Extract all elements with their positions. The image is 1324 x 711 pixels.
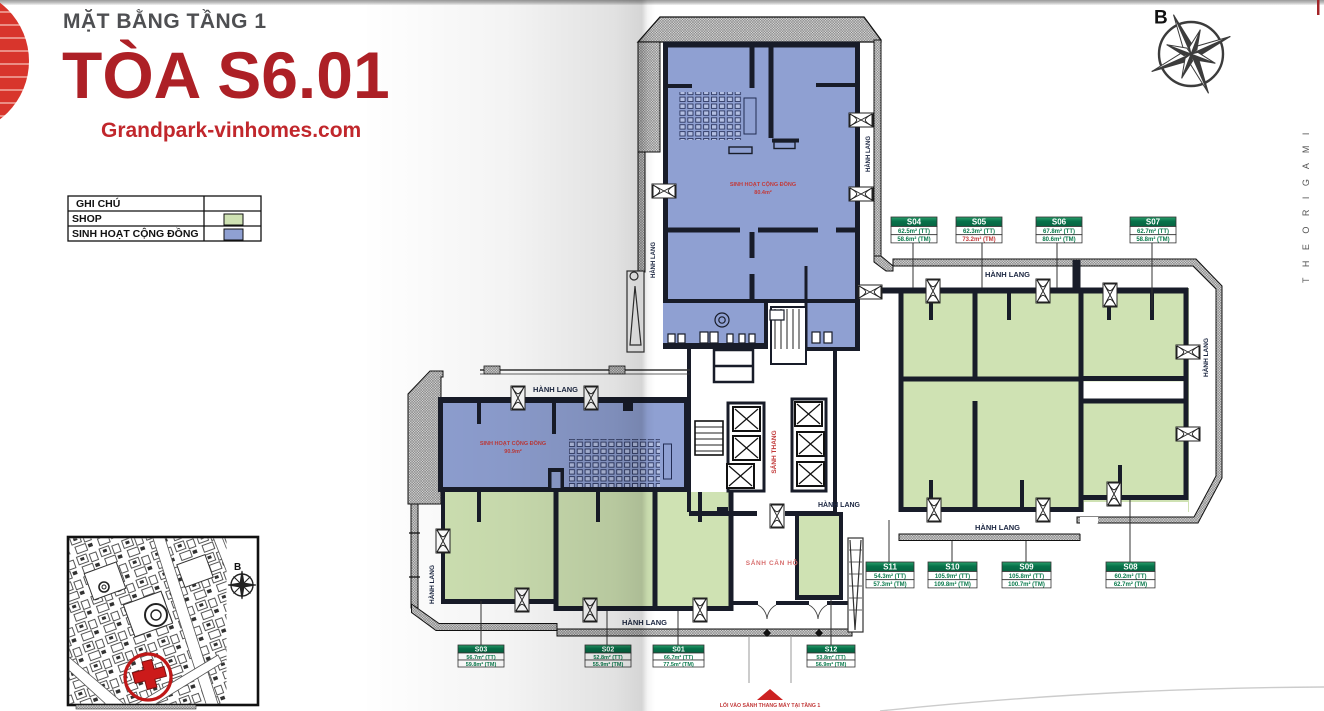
svg-text:77.5m² (TM): 77.5m² (TM) bbox=[663, 661, 694, 668]
svg-text:54.3m² (TT): 54.3m² (TT) bbox=[874, 573, 906, 580]
svg-text:LỐI VÀO SẢNH THANG MÁY TẠI TẦN: LỐI VÀO SẢNH THANG MÁY TẠI TẦNG 1 bbox=[720, 702, 821, 709]
svg-text:80.6m² (TM): 80.6m² (TM) bbox=[1042, 236, 1075, 243]
svg-text:80.4m²: 80.4m² bbox=[754, 189, 772, 196]
svg-text:S12: S12 bbox=[825, 647, 838, 654]
svg-text:S07: S07 bbox=[1146, 218, 1161, 227]
svg-text:S06: S06 bbox=[1052, 218, 1067, 227]
svg-text:62.7m² (TM): 62.7m² (TM) bbox=[1114, 581, 1147, 588]
svg-text:58.6m² (TM): 58.6m² (TM) bbox=[897, 236, 930, 243]
svg-text:S04: S04 bbox=[907, 218, 922, 227]
svg-text:MẶT BẰNG TẦNG 1: MẶT BẰNG TẦNG 1 bbox=[63, 9, 267, 33]
svg-text:Grandpark-vinhomes.com: Grandpark-vinhomes.com bbox=[101, 119, 361, 142]
svg-text:HÀNH LANG: HÀNH LANG bbox=[975, 523, 1020, 532]
svg-text:SINH HOẠT CỘNG ĐỒNG: SINH HOẠT CỘNG ĐỒNG bbox=[72, 227, 199, 240]
svg-text:SẢNH THANG: SẢNH THANG bbox=[769, 430, 778, 473]
svg-text:B: B bbox=[1154, 8, 1168, 29]
svg-text:62.5m² (TT): 62.5m² (TT) bbox=[898, 228, 930, 235]
svg-text:GHI CHÚ: GHI CHÚ bbox=[76, 197, 120, 210]
svg-text:HÀNH LANG: HÀNH LANG bbox=[818, 500, 861, 509]
svg-text:58.8m² (TM): 58.8m² (TM) bbox=[1136, 236, 1169, 243]
svg-text:SHOP: SHOP bbox=[72, 213, 102, 225]
svg-text:HÀNH LANG: HÀNH LANG bbox=[1201, 338, 1210, 377]
svg-text:56.9m² (TM): 56.9m² (TM) bbox=[816, 661, 847, 668]
svg-text:S10: S10 bbox=[945, 563, 960, 572]
svg-text:66.7m² (TT): 66.7m² (TT) bbox=[664, 654, 694, 661]
svg-text:S05: S05 bbox=[972, 218, 987, 227]
svg-text:60.2m² (TT): 60.2m² (TT) bbox=[1114, 573, 1146, 580]
svg-text:HÀNH LANG: HÀNH LANG bbox=[865, 136, 872, 172]
svg-text:100.7m² (TM): 100.7m² (TM) bbox=[1008, 581, 1045, 588]
svg-text:62.3m² (TT): 62.3m² (TT) bbox=[963, 228, 995, 235]
svg-text:B: B bbox=[234, 562, 241, 573]
svg-text:T H E O R I G A M I: T H E O R I G A M I bbox=[1301, 129, 1311, 283]
svg-text:57.3m² (TM): 57.3m² (TM) bbox=[873, 581, 906, 588]
svg-text:S08: S08 bbox=[1123, 563, 1138, 572]
svg-text:53.8m² (TT): 53.8m² (TT) bbox=[816, 654, 846, 661]
svg-text:62.7m² (TT): 62.7m² (TT) bbox=[1137, 228, 1169, 235]
svg-text:109.8m² (TM): 109.8m² (TM) bbox=[934, 581, 971, 588]
svg-text:TÒA S6.01: TÒA S6.01 bbox=[62, 38, 390, 112]
svg-text:S11: S11 bbox=[883, 563, 897, 572]
svg-text:HÀNH LANG: HÀNH LANG bbox=[985, 270, 1030, 279]
svg-text:S01: S01 bbox=[672, 647, 685, 654]
svg-text:67.8m² (TT): 67.8m² (TT) bbox=[1043, 228, 1075, 235]
svg-text:73.2m² (TM): 73.2m² (TM) bbox=[962, 236, 995, 243]
svg-text:105.8m² (TT): 105.8m² (TT) bbox=[1009, 573, 1044, 580]
svg-text:SẢNH CĂN HỘ: SẢNH CĂN HỘ bbox=[746, 558, 798, 567]
svg-text:105.9m² (TT): 105.9m² (TT) bbox=[935, 573, 970, 580]
svg-text:SINH HOẠT CỘNG ĐỒNG: SINH HOẠT CỘNG ĐỒNG bbox=[730, 180, 796, 188]
svg-text:S09: S09 bbox=[1019, 563, 1034, 572]
